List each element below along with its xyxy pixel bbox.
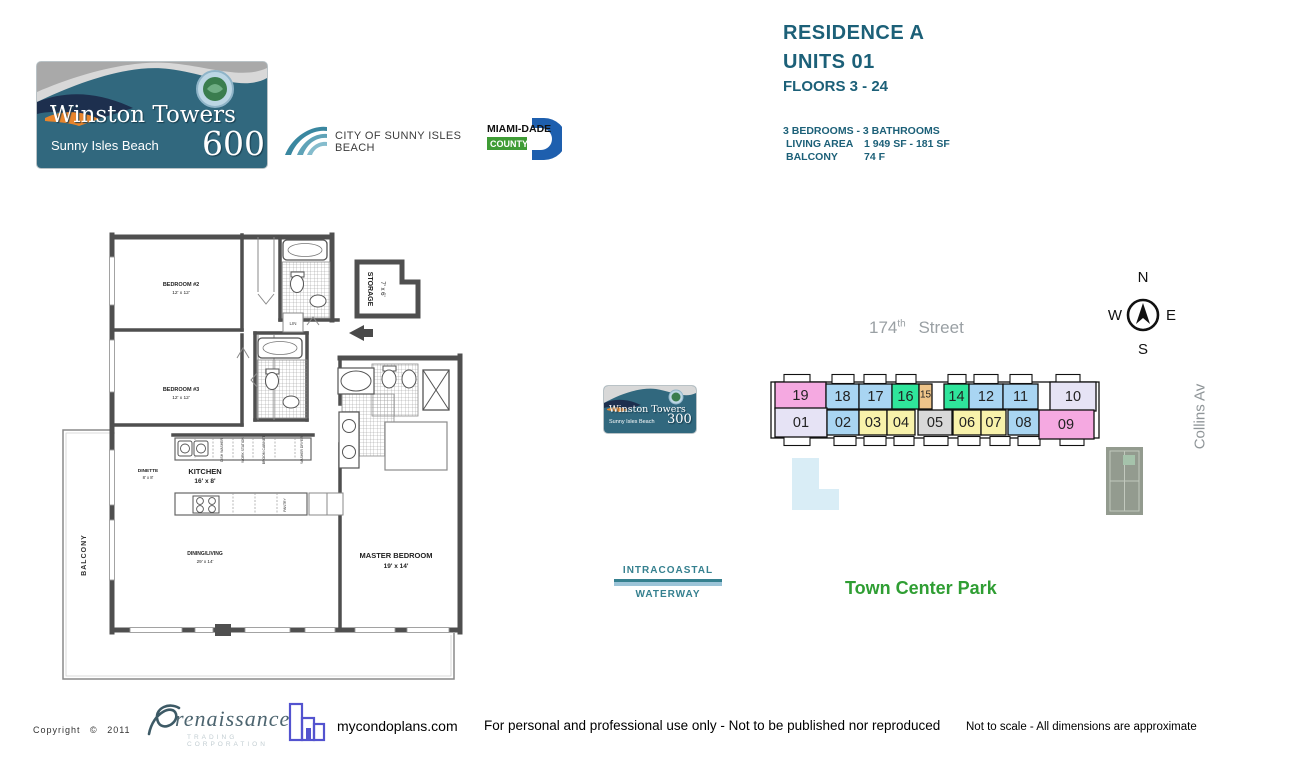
compass-west: W: [1108, 307, 1123, 324]
city-wave-1: [285, 127, 327, 155]
compass-east: E: [1166, 307, 1176, 324]
kitchen-label: KITCHEN: [188, 467, 221, 476]
mini-logo-number: 300: [667, 412, 692, 427]
appliance-label-3: BROOM CABINET: [262, 436, 266, 464]
bedroom3-label: BEDROOM #3: [163, 387, 199, 393]
storage-dims: 7' x 6': [379, 281, 385, 296]
svg-text:02: 02: [835, 415, 851, 431]
svg-text:06: 06: [959, 415, 975, 431]
appliance-label-2: WORK STATION: [241, 437, 245, 463]
dinette-label: DINETTE: [138, 468, 159, 474]
street-label: 174th Street: [869, 318, 964, 338]
svg-text:16: 16: [897, 389, 913, 405]
pillar: [215, 624, 231, 636]
svg-text:18: 18: [834, 389, 850, 405]
entry-arrow-icon: [349, 325, 373, 341]
logo-number: 600: [202, 124, 265, 163]
renaissance-wordmark: renaissance: [175, 706, 290, 732]
svg-text:05: 05: [927, 415, 943, 431]
copyright-line: Copyright © 2011: [33, 725, 131, 735]
spec-balcony: BALCONY 74 F: [783, 151, 950, 164]
svg-text:01: 01: [793, 415, 809, 431]
bedroom3-dims: 12' x 12': [172, 395, 190, 401]
svg-text:03: 03: [865, 415, 881, 431]
scale-disclaimer: Not to scale - All dimensions are approx…: [966, 721, 1197, 733]
floorplan-document-page: Winston Towers Sunny Isles Beach 600 CIT…: [0, 0, 1313, 768]
spec-bedrooms-text: 3 BEDROOMS - 3 BATHROOMS: [783, 125, 940, 138]
unit-19[interactable]: 19: [775, 382, 826, 409]
appliance-label-4: WASHER DRYER: [300, 436, 304, 464]
svg-text:14: 14: [948, 389, 964, 405]
city-logo-label: CITY OF SUNNY ISLES BEACH: [335, 130, 483, 154]
appliance-label-1: DISH WASHER: [220, 438, 224, 462]
unit-05[interactable]: 05: [918, 410, 952, 435]
miami-dade-logo-art: MIAMI-DADE COUNTY: [486, 116, 562, 164]
linen-label: LIN: [289, 321, 296, 326]
residence-header: RESIDENCE A UNITS 01 FLOORS 3 - 24 3 BED…: [783, 22, 950, 164]
unit-02[interactable]: 02: [827, 410, 859, 435]
mycondoplans-buildings-icon: [287, 702, 329, 744]
storage-label: STORAGE: [366, 272, 373, 307]
tub: [258, 338, 302, 358]
spec-balcony-label: BALCONY: [783, 151, 864, 164]
intracoastal-waterway-label: INTRACOASTAL WATERWAY: [612, 565, 724, 600]
pantry-label: PANTRY: [283, 498, 287, 512]
waterway-line1: INTRACOASTAL: [612, 565, 724, 576]
bedroom2-dims: 12' x 12': [172, 290, 190, 296]
svg-text:11: 11: [1013, 389, 1028, 405]
unit-01[interactable]: 01: [775, 408, 827, 437]
usage-disclaimer: For personal and professional use only -…: [484, 718, 940, 733]
unit-06[interactable]: 06: [953, 410, 981, 435]
bedroom2-label: BEDROOM #2: [163, 282, 199, 288]
unit-17[interactable]: 17: [859, 384, 892, 409]
balcony-label: BALCONY: [81, 534, 88, 576]
county-word: COUNTY: [490, 139, 528, 149]
unit-09[interactable]: 09: [1039, 410, 1094, 439]
living-label: DINING/LIVING: [187, 551, 223, 557]
unit-04[interactable]: 04: [887, 410, 915, 435]
sink: [310, 295, 326, 307]
spec-balcony-value: 74 F: [864, 151, 885, 164]
city-wave-icon: [283, 119, 329, 159]
dinette-dims: 8' x 8': [143, 475, 154, 480]
master-bathroom: [338, 364, 449, 470]
master-label: MASTER BEDROOM: [360, 551, 433, 560]
unit-14[interactable]: 14: [944, 384, 969, 409]
kitchen-dims: 16' x 8': [194, 478, 216, 485]
toilet: [382, 370, 396, 388]
unit-12[interactable]: 12: [969, 384, 1003, 409]
unit-08[interactable]: 08: [1008, 410, 1039, 435]
town-center-park-label: Town Center Park: [845, 578, 997, 599]
waterway-line2: WATERWAY: [612, 589, 724, 600]
copyright-symbol: ©: [90, 725, 98, 735]
compass-needle: [1136, 303, 1150, 324]
svg-text:10: 10: [1065, 389, 1081, 405]
spec-living-area-value: 1 949 SF - 181 SF: [864, 138, 950, 151]
compass-north: N: [1138, 269, 1149, 286]
street-number: 174: [869, 318, 897, 337]
compass-icon: N W E S: [1103, 264, 1183, 356]
unit-15[interactable]: 15: [919, 384, 932, 409]
tennis-court: [1106, 447, 1143, 515]
unit-18[interactable]: 18: [826, 384, 859, 409]
bidet: [402, 370, 416, 388]
mini-logo-seal-center: [672, 393, 681, 402]
compass-south: S: [1138, 341, 1148, 356]
svg-text:15: 15: [920, 390, 932, 401]
unit-11[interactable]: 11: [1003, 384, 1038, 409]
units-title: UNITS 01: [783, 51, 950, 74]
pool-shape-lower: [792, 489, 839, 510]
spec-bedrooms: 3 BEDROOMS - 3 BATHROOMS: [783, 125, 950, 138]
miami-dade-name: MIAMI-DADE: [487, 123, 551, 135]
walk-in-closet: [385, 422, 447, 470]
unit-16[interactable]: 16: [892, 384, 919, 409]
sink: [283, 396, 299, 408]
pantry-cabinet: [309, 493, 327, 515]
renaissance-subtitle: TRADING CORPORATION: [187, 734, 273, 748]
svg-text:09: 09: [1058, 417, 1074, 433]
unit-10[interactable]: 10: [1050, 382, 1096, 411]
svg-text:04: 04: [893, 415, 909, 431]
unit-03[interactable]: 03: [859, 410, 887, 435]
tub: [283, 240, 327, 260]
unit-floorplan: STORAGE 7' x 6' LIN: [55, 222, 465, 700]
bathroom-2: [282, 240, 330, 318]
mini-logo-subtitle: Sunny Isles Beach: [609, 419, 655, 425]
collins-av-label: Collins Av: [1192, 377, 1209, 457]
city-of-sunny-isles-beach-logo: CITY OF SUNNY ISLES BEACH: [283, 117, 483, 161]
toilet: [266, 373, 279, 390]
toilet: [291, 276, 304, 293]
renaissance-logo: renaissance TRADING CORPORATION: [143, 698, 273, 746]
svg-text:08: 08: [1015, 415, 1031, 431]
svg-text:07: 07: [985, 415, 1001, 431]
svg-text:17: 17: [867, 389, 883, 405]
bathroom-3: [257, 338, 307, 418]
residence-title: RESIDENCE A: [783, 22, 950, 45]
court-patch: [1123, 455, 1135, 465]
mycondoplans-url: mycondoplans.com: [337, 718, 458, 734]
vanity: [339, 412, 359, 468]
winston-towers-600-logo: Winston Towers Sunny Isles Beach 600: [37, 62, 267, 168]
waterway-bar-light: [614, 582, 722, 586]
living-dims: 29' x 14': [197, 559, 214, 564]
master-dims: 19' x 14': [384, 563, 409, 570]
building-fill-bar: [306, 728, 311, 740]
svg-text:19: 19: [792, 388, 808, 404]
copyright-word: Copyright: [33, 725, 81, 735]
spec-living-area: LIVING AREA 1 949 SF - 181 SF: [783, 138, 950, 151]
building-site-plan: 19 18 17 16 15 14 12 11 10 01 02 03 04 0…: [762, 368, 1112, 463]
winston-towers-300-logo: Winston Towers Sunny Isles Beach 300: [604, 386, 696, 433]
street-ordinal: th: [897, 318, 905, 329]
svg-text:12: 12: [978, 389, 994, 405]
miami-dade-county-logo: MIAMI-DADE COUNTY: [486, 116, 562, 164]
floors-range: FLOORS 3 - 24: [783, 78, 950, 95]
spec-living-area-label: LIVING AREA: [783, 138, 864, 151]
unit-07[interactable]: 07: [981, 410, 1006, 435]
logo-subtitle: Sunny Isles Beach: [51, 138, 159, 153]
street-word: Street: [918, 318, 963, 337]
copyright-year: 2011: [107, 725, 130, 735]
residence-specs: 3 BEDROOMS - 3 BATHROOMS LIVING AREA 1 9…: [783, 125, 950, 164]
